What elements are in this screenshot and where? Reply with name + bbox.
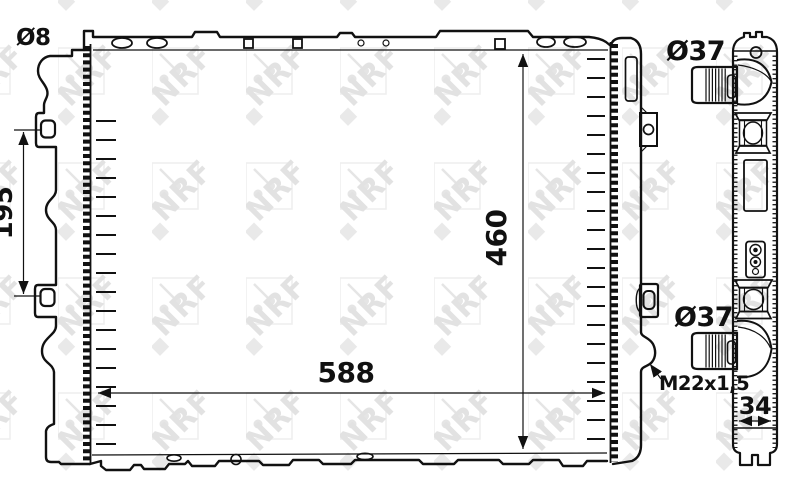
label-bottom-pipe-diameter: Ø37 — [674, 302, 733, 333]
label-drain-thread: M22x1,5 — [659, 372, 749, 395]
top-pipe-ribs — [706, 69, 725, 102]
bottom-pipe-ribs — [706, 335, 725, 368]
grommet-dot — [753, 248, 758, 253]
dim-34-label: 34 — [739, 392, 771, 420]
label-top-pipe-diameter: Ø37 — [666, 36, 725, 67]
core-fins-left — [95, 112, 119, 448]
dim-195-label: 195 — [0, 187, 19, 240]
core-fins-right — [586, 50, 610, 450]
radiator-technical-drawing: NRF — [0, 0, 800, 502]
side-body-right-stitching — [773, 54, 777, 448]
dim-460-label: 460 — [480, 210, 513, 267]
dim-588-label: 588 — [318, 356, 375, 389]
radiator-technical-drawing-page: NRF — [0, 0, 800, 502]
label-hole-diameter-8: Ø8 — [16, 25, 51, 51]
nrf-watermark-layer — [0, 0, 800, 502]
grommet-dot — [754, 260, 758, 264]
